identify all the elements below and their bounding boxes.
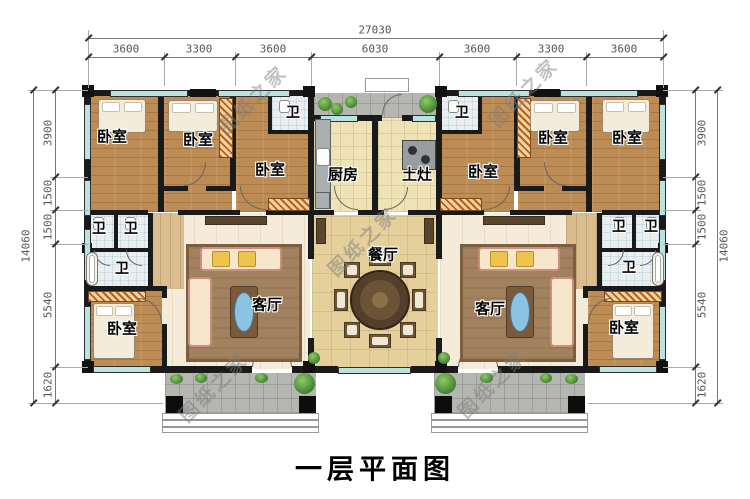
- window: [659, 104, 666, 160]
- room-label-bath: 卫: [644, 216, 658, 236]
- room-label-bedroom: 卧室: [183, 129, 213, 150]
- wall-segment: [510, 210, 572, 215]
- dim-extension: [28, 90, 88, 91]
- dim-segment: 5540: [696, 292, 709, 319]
- dim-total-width: 27030: [358, 24, 391, 37]
- sofa: [550, 277, 574, 347]
- dining-table-center: [372, 292, 388, 308]
- dining-chair: [412, 289, 426, 311]
- bush: [419, 95, 437, 113]
- wardrobe: [268, 198, 310, 211]
- wall-pier: [435, 86, 447, 97]
- plant: [255, 373, 268, 383]
- room-label-bedroom: 卧室: [468, 161, 498, 182]
- wall-segment: [440, 130, 482, 134]
- window: [84, 306, 91, 360]
- plant: [308, 352, 320, 364]
- tv-cabinet: [205, 216, 267, 225]
- room-label-bath: 卫: [92, 218, 106, 238]
- dim-line: [88, 38, 663, 39]
- porch-column: [299, 396, 316, 413]
- page-title: 一层平面图: [295, 448, 455, 487]
- wardrobe: [440, 198, 482, 211]
- wall-segment: [402, 115, 412, 121]
- dim-segment: 6030: [362, 43, 389, 56]
- window: [338, 367, 411, 374]
- porch-column: [568, 396, 585, 413]
- coffee-table-glass: [510, 292, 530, 332]
- plant: [318, 97, 332, 111]
- dim-segment: 5540: [42, 292, 55, 319]
- wall-segment: [562, 186, 586, 191]
- room-label-bedroom: 卧室: [538, 127, 568, 148]
- dim-segment: 1620: [42, 372, 55, 399]
- dim-segment: 3900: [696, 120, 709, 147]
- dim-segment: 1500: [696, 180, 709, 207]
- room-label-bath: 卫: [612, 216, 626, 236]
- dining-chair: [334, 289, 348, 311]
- dim-segment: 1500: [696, 214, 709, 241]
- wall-segment: [114, 213, 118, 250]
- wall-segment: [308, 215, 314, 259]
- fridge: [315, 192, 330, 209]
- room-label-bath: 卫: [286, 102, 300, 122]
- wall-pier: [656, 85, 668, 97]
- wall-segment: [372, 115, 378, 215]
- front-step: [162, 427, 319, 433]
- dim-segment: 3600: [611, 43, 638, 56]
- dining-cabinet: [424, 218, 434, 244]
- dining-cabinet: [316, 218, 326, 244]
- sofa-cushion: [490, 251, 508, 267]
- wardrobe: [604, 291, 662, 302]
- wall-segment: [358, 115, 382, 121]
- wall-segment: [158, 96, 164, 212]
- wall-segment: [436, 90, 442, 215]
- sofa-cushion: [238, 251, 256, 267]
- dining-chair: [400, 322, 416, 338]
- wall-segment: [164, 186, 188, 191]
- wall-segment: [632, 213, 636, 250]
- dining-chair: [400, 262, 416, 278]
- front-step: [431, 413, 588, 420]
- wall-segment: [178, 210, 240, 215]
- dim-line: [33, 90, 34, 403]
- dim-segment: 1620: [696, 372, 709, 399]
- room-label-living: 客厅: [475, 298, 505, 319]
- room-label-stove: 土灶: [402, 164, 432, 185]
- dim-total-height: 14060: [20, 229, 33, 262]
- room-label-living: 客厅: [252, 294, 282, 315]
- dim-total-height: 14060: [718, 229, 731, 262]
- wall-segment: [478, 96, 482, 132]
- window: [93, 366, 151, 373]
- bathtub: [652, 252, 664, 286]
- bush: [294, 373, 315, 394]
- wall-segment: [162, 324, 167, 372]
- hall-floor: [150, 213, 184, 289]
- window: [560, 90, 638, 97]
- wall-segment: [206, 186, 232, 191]
- window: [110, 90, 188, 97]
- dim-segment: 1500: [42, 180, 55, 207]
- plant: [331, 103, 343, 115]
- plant: [170, 374, 183, 384]
- room-label-bedroom: 卧室: [255, 159, 285, 180]
- sofa-cushion: [212, 251, 230, 267]
- room-label-bedroom: 卧室: [97, 126, 127, 147]
- dim-segment: 1500: [42, 214, 55, 241]
- bush: [435, 373, 456, 394]
- wall-segment: [518, 186, 544, 191]
- tv-cabinet: [483, 216, 545, 225]
- wall-segment: [162, 286, 167, 298]
- back-step: [365, 78, 409, 92]
- plant: [540, 373, 552, 383]
- sofa-cushion: [516, 251, 534, 267]
- wall-segment: [583, 324, 588, 372]
- window: [599, 366, 657, 373]
- room-label-bath: 卫: [455, 102, 469, 122]
- room-label-bedroom: 卧室: [612, 127, 642, 148]
- bathtub: [86, 252, 98, 286]
- dining-chair: [344, 322, 360, 338]
- dining-chair: [369, 334, 391, 348]
- dim-line: [55, 90, 56, 403]
- room-label-bedroom: 卧室: [107, 318, 137, 339]
- bed: [168, 100, 218, 132]
- plant: [565, 374, 578, 384]
- wall-segment: [586, 96, 592, 212]
- floor-plan-canvas: 卧室 卧室 卧室 卧室 卧室 卧室 卧室 卧室 卫 卫 卫 卫 卫 卫 卫 卫 …: [0, 0, 750, 499]
- dim-segment: 3300: [186, 43, 213, 56]
- dim-segment: 3600: [464, 43, 491, 56]
- dim-segment: 3300: [538, 43, 565, 56]
- wall-segment: [292, 366, 338, 373]
- dim-segment: 3900: [42, 120, 55, 147]
- wall-pier: [303, 86, 315, 97]
- dim-segment: 3600: [113, 43, 140, 56]
- room-label-bedroom: 卧室: [609, 317, 639, 338]
- window: [659, 306, 666, 360]
- window: [412, 115, 436, 122]
- porch-column: [435, 396, 452, 413]
- room-label-bath: 卫: [115, 258, 129, 278]
- room-label-kitchen: 厨房: [328, 164, 358, 185]
- room-label-bath: 卫: [124, 218, 138, 238]
- wall-pier: [190, 89, 216, 97]
- front-step: [431, 427, 588, 433]
- dim-segment: 3600: [260, 43, 287, 56]
- plant: [345, 96, 357, 108]
- plant: [438, 352, 450, 364]
- window: [84, 104, 91, 160]
- stove-burner: [408, 146, 417, 155]
- dim-line: [88, 57, 663, 58]
- front-step: [431, 420, 588, 427]
- wall-segment: [436, 215, 442, 259]
- dim-extension: [28, 403, 163, 404]
- wall-segment: [308, 90, 314, 215]
- dim-extension: [588, 403, 723, 404]
- wall-segment: [583, 286, 588, 298]
- sofa: [188, 277, 212, 347]
- room-label-bath: 卫: [622, 257, 636, 277]
- wall-segment: [268, 130, 310, 134]
